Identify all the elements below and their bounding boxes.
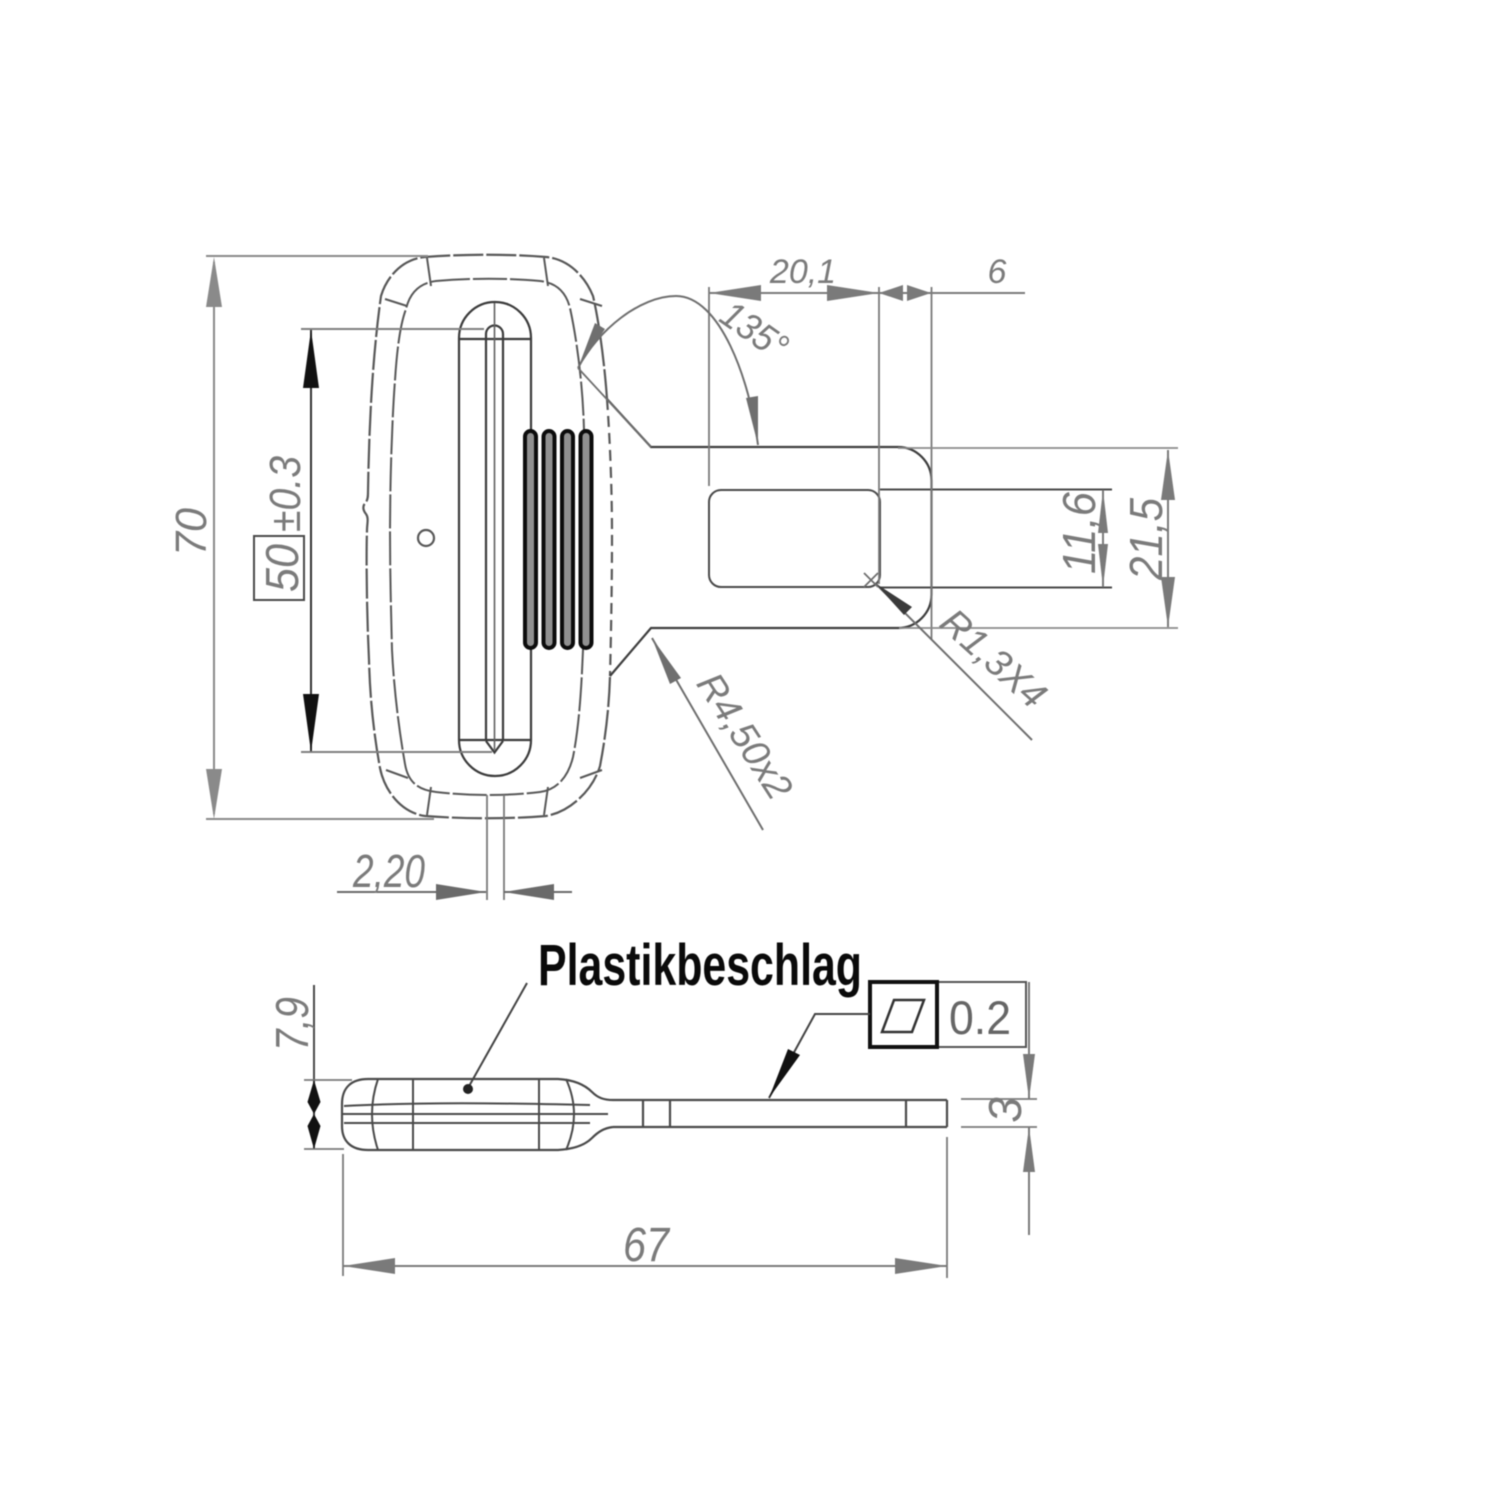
svg-text:20,1: 20,1 bbox=[769, 253, 836, 291]
svg-text:3: 3 bbox=[979, 1097, 1031, 1123]
svg-text:Plastikbeschlag: Plastikbeschlag bbox=[538, 933, 862, 998]
svg-text:0.2: 0.2 bbox=[949, 991, 1011, 1044]
svg-text:21,5: 21,5 bbox=[1120, 498, 1172, 581]
svg-text:11,6: 11,6 bbox=[1053, 492, 1105, 574]
svg-text:50: 50 bbox=[256, 544, 308, 592]
svg-text:70: 70 bbox=[167, 507, 216, 556]
svg-text:6: 6 bbox=[988, 253, 1007, 291]
svg-text:2,20: 2,20 bbox=[352, 845, 425, 897]
svg-text:7,9: 7,9 bbox=[266, 997, 318, 1051]
svg-text:67: 67 bbox=[623, 1219, 671, 1272]
svg-text:±0.3: ±0.3 bbox=[261, 456, 310, 532]
